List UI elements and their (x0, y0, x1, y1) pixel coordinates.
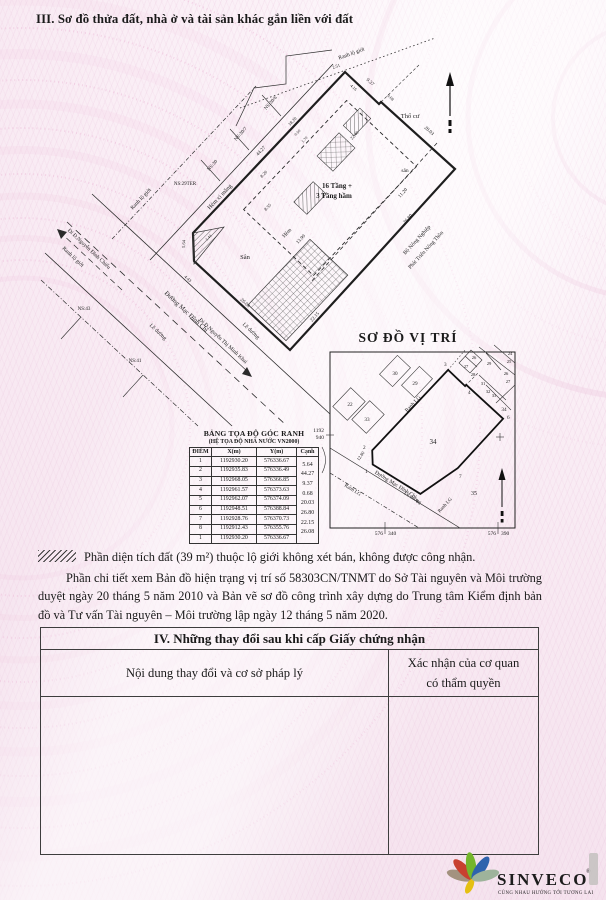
section-iv-body-row (41, 697, 538, 854)
map-corner-1: 1 (365, 469, 368, 475)
coord-cell-x: 1192930.20 (211, 457, 256, 467)
map-lot-31: 31 (481, 381, 486, 386)
le-duong-label-2: Lề đường (241, 321, 262, 341)
sinveco-wordmark: SINVECO (497, 870, 588, 889)
map-ranh-lg-se: Ranh LG (438, 497, 454, 514)
coord-cell-x: 1192948.51 (211, 505, 256, 515)
map-ranh-lg-nw: Ranh LG (404, 395, 422, 414)
coord-cell-x: 1192912.43 (211, 525, 256, 535)
coord-cell-p: 8 (190, 525, 212, 535)
dim-in-a: 8.20 (259, 169, 269, 179)
sinveco-tagline: CÙNG NHAU HƯỚNG TỚI TƯƠNG LAI (498, 890, 593, 896)
map-lot-34-right: 34 (501, 407, 507, 413)
ns-29ter-label: NS:29TER (174, 182, 197, 187)
coord-cell-x: 1192935.83 (211, 466, 256, 476)
certificate-page: III. Sơ đồ thửa đất, nhà ở và tài sản kh… (0, 0, 606, 900)
excluded-area-note-text: Phần diện tích đất (39 m²) thuộc lộ giới… (84, 550, 475, 564)
map-street-dim: 12.80 (356, 450, 366, 462)
coord-cell-canh: 5.64 (297, 457, 319, 467)
excluded-area-note: Phần diện tích đất (39 m²) thuộc lộ giới… (38, 548, 542, 567)
dim-e12: 5.64 (181, 239, 186, 248)
section-iv-title: IV. Những thay đổi sau khi cấp Giấy chứn… (41, 628, 538, 650)
coord-table-row: 11192930.20576336.675.64 (190, 457, 319, 467)
coord-cell-y: 576388.84 (257, 505, 297, 515)
san-label: Sân (240, 254, 251, 261)
map-corner-3: 3 (444, 362, 447, 368)
coord-table-title: BẢNG TỌA ĐỘ GÓC RANH (189, 429, 319, 438)
sinveco-leaf-icon (446, 852, 501, 895)
coord-table-row: 41192961.57576373.630.68 (190, 486, 319, 496)
section-iv-table: IV. Những thay đổi sau khi cấp Giấy chứn… (40, 627, 539, 855)
map-lot-26: 26 (472, 355, 477, 360)
dim-e34: 9.37 (365, 78, 375, 88)
dim-tri-b: 4.43 (183, 274, 193, 284)
map-lot-29: 29 (412, 381, 418, 387)
coord-cell-y: 576366.85 (257, 476, 297, 486)
col-y: Y(m) (257, 447, 297, 457)
coord-table-row: 61192948.51576388.8426.80 (190, 505, 319, 515)
coord-cell-p: 4 (190, 486, 212, 496)
section-iii-title: III. Sơ đồ thửa đất, nhà ở và tài sản kh… (36, 12, 353, 27)
le-duong-label-1: Lề đường (148, 322, 169, 342)
map-lot-35: 35 (471, 491, 477, 497)
coord-table-row: 71192928.76576370.7322.15 (190, 515, 319, 525)
hatch-swatch-icon (38, 550, 76, 562)
hem-label: Hẻm (281, 227, 293, 239)
map-parcel-boundary (372, 370, 503, 494)
map-lot-28: 28 (471, 372, 476, 377)
map-lot-26b: 26 (504, 371, 509, 376)
map-ranh-lg-sw: Ranh LG (343, 484, 362, 498)
ns-30-label: NS:30 (207, 159, 220, 172)
coord-cell-p: 6 (190, 505, 212, 515)
map-lot-22: 22 (347, 402, 353, 408)
north-arrow-icon (446, 72, 454, 133)
map-lot-33: 33 (364, 417, 370, 423)
coord-cell-x: 1192928.76 (211, 515, 256, 525)
coord-cell-y: 576336.67 (257, 534, 297, 544)
map-lot-30: 30 (392, 371, 398, 377)
col-x: X(m) (211, 447, 256, 457)
coord-cell-x: 1192930.20 (211, 534, 256, 544)
coord-cell-y: 576336.49 (257, 466, 297, 476)
coord-cell-p: 3 (190, 476, 212, 486)
coord-table-row: 21192935.83576336.4944.27 (190, 466, 319, 476)
grid-y1-a: 576 (375, 531, 384, 537)
coord-cell-p: 5 (190, 495, 212, 505)
building-floors-label: 16 Tầng + (322, 182, 352, 190)
map-lot-27b: 27 (506, 379, 511, 384)
map-parcel-numbers: 30 29 26 27 28 24 25 29 26 27 31 32 33 3… (347, 351, 513, 497)
sinveco-logo: SINVECO ® CÙNG NHAU HƯỚNG TỚI TƯƠNG LAI (437, 849, 602, 899)
excluded-area-triangle (193, 227, 224, 264)
coord-cell-y: 576370.73 (257, 515, 297, 525)
notes-block: Phần diện tích đất (39 m²) thuộc lộ giới… (38, 548, 542, 624)
coord-cell-y: 576373.63 (257, 486, 297, 496)
ns-41-label: NS:41 (129, 359, 142, 364)
coord-cell-x: 1192962.07 (211, 495, 256, 505)
dim-e56: 20.03 (423, 126, 435, 138)
map-lot-34-subject: 34 (430, 438, 438, 446)
binding-edge-mark (589, 853, 598, 885)
coordinate-table-block: BẢNG TỌA ĐỘ GÓC RANH (HỆ TỌA ĐỘ NHÀ NƯỚC… (189, 429, 319, 544)
grid-y1-b: 340 (388, 531, 397, 537)
authority-confirm-line1: Xác nhận của cơ quan (408, 653, 520, 673)
building-basement-label: 3 Tầng hầm (316, 192, 352, 200)
coord-table-row: 31192968.05576366.859.37 (190, 476, 319, 486)
coordinate-table: ĐIỂM X(m) Y(m) Cạnh 11192930.20576336.67… (189, 447, 319, 545)
authority-confirm-line2: có thẩm quyền (426, 673, 500, 693)
dim-bld-a: 18.20 (287, 115, 298, 126)
dim-hem-len: 13.90 (296, 234, 307, 246)
coord-cell-x: 1192968.05 (211, 476, 256, 486)
map-border (330, 352, 515, 528)
hem-xi-mang-label: Hẻm xi măng (207, 183, 234, 211)
coord-cell-y: 576336.67 (257, 457, 297, 467)
dim-enc-a: 0.50 (293, 128, 301, 137)
map-lot-27: 27 (464, 364, 469, 369)
map-lot-25: 25 (507, 359, 512, 364)
map-corner-4: 4 (468, 390, 471, 396)
to-nguyen-thi-minh-khai-label: Đi Đ.Nguyễn Thị Minh Khai (197, 317, 249, 366)
map-lot-33b: 33 (492, 393, 497, 398)
map-corner-2: 2 (363, 445, 366, 451)
map-lot-24: 24 (508, 351, 513, 356)
col-diem: ĐIỂM (190, 447, 212, 457)
grid-y2-a: 576 (488, 531, 497, 537)
authority-confirm-header: Xác nhận của cơ quan có thẩm quyền (389, 650, 538, 696)
ns-30-7-label: NS:30/7 (234, 126, 249, 142)
to-nguyen-dinh-chieu-label: Đi Đ.Nguyễn Đình Chiểu (66, 227, 112, 271)
dim-hem-w: 11.20 (398, 187, 409, 199)
grid-y2-b: 390 (501, 531, 510, 537)
coord-cell-p: 2 (190, 466, 212, 476)
ranh-lo-gioi-sw-label: Ranh lộ giới (61, 246, 85, 269)
map-north-arrow-icon (499, 468, 506, 523)
map-corner-6: 6 (507, 415, 510, 421)
coord-table-row: 51192962.07576374.0920.03 (190, 495, 319, 505)
coord-cell-p: 1 (190, 457, 212, 467)
section-iv-header-row: Nội dung thay đổi và cơ sở pháp lý Xác n… (41, 650, 538, 697)
location-map: 1 2 3 4 6 7 8 30 29 26 27 28 24 25 29 26… (296, 325, 606, 550)
coord-cell-p: 1 (190, 534, 212, 544)
coord-table-row: 81192912.43576355.7626.08 (190, 525, 319, 535)
coord-cell-p: 7 (190, 515, 212, 525)
coord-cell-y: 576355.76 (257, 525, 297, 535)
map-lot-29b: 29 (487, 361, 492, 366)
coord-table-row: 11192930.20576336.67 (190, 534, 319, 544)
authority-confirm-cell (389, 697, 538, 854)
coord-cell-x: 1192961.57 (211, 486, 256, 496)
existing-structures (248, 108, 371, 340)
coord-cell-y: 576374.09 (257, 495, 297, 505)
san-small-label: sân (401, 168, 409, 174)
dim-e45: 0.68 (386, 93, 395, 102)
map-corner-7: 7 (459, 474, 462, 480)
ranh-lo-gioi-top-label: Ranh lộ giới (338, 46, 366, 61)
dim-in-b: 8.55 (263, 202, 273, 212)
ns-30-6-label: NS:30/6 (264, 95, 279, 111)
map-lot-32: 32 (486, 389, 491, 394)
col-canh: Cạnh (297, 447, 319, 457)
change-content-header: Nội dung thay đổi và cơ sở pháp lý (41, 650, 389, 696)
dim-seg-top: 2.51 (332, 63, 341, 70)
coord-table-subtitle: (HỆ TỌA ĐỘ NHÀ NƯỚC VN2000) (189, 439, 319, 445)
tho-cu-label: Thổ cư (401, 113, 420, 120)
change-content-cell (41, 697, 389, 854)
ns-43-label: NS:43 (78, 307, 91, 312)
detail-reference-note: Phần chi tiết xem Bản đồ hiện trạng vị t… (38, 569, 542, 625)
